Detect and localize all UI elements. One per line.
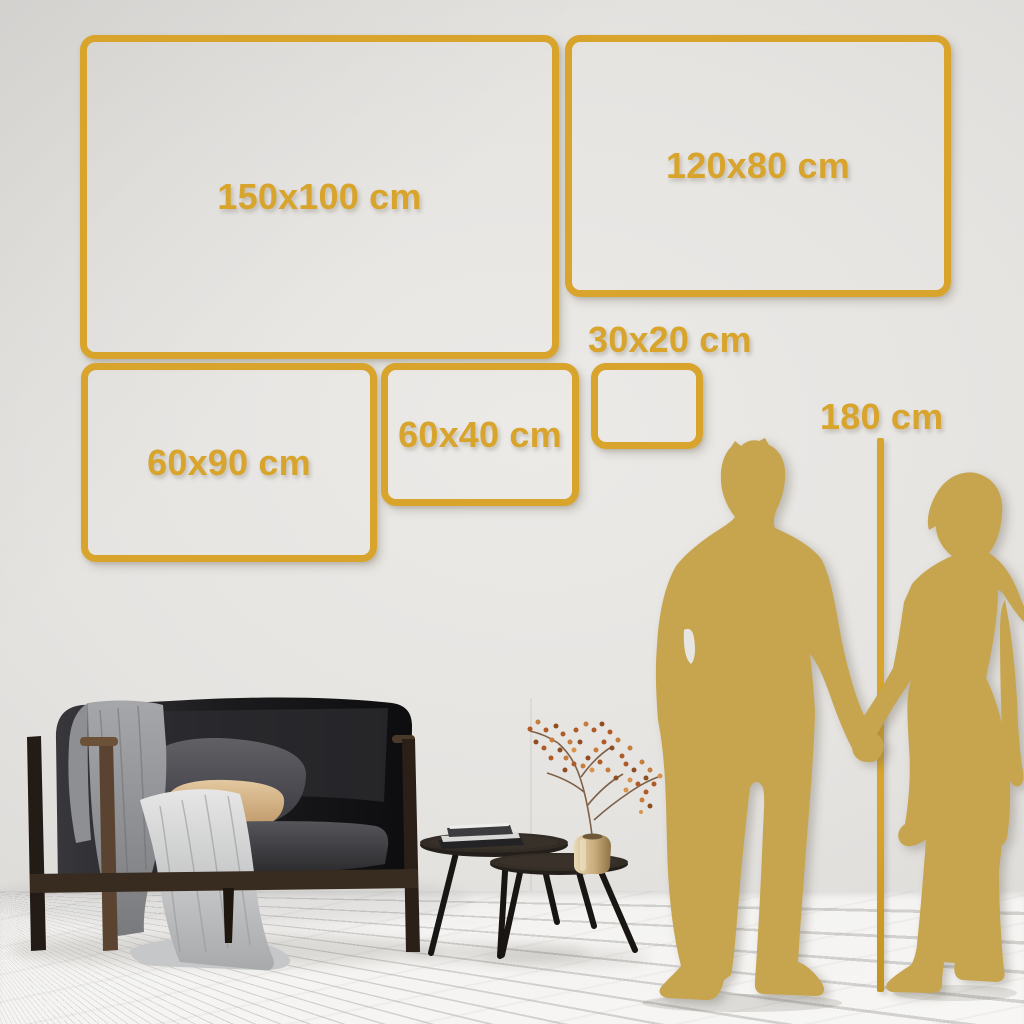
size-frame-60x40: 60x40 cm <box>381 363 579 506</box>
size-frame-60x90: 60x90 cm <box>81 363 377 562</box>
height-ruler-line <box>877 438 884 992</box>
size-frame-120x80: 120x80 cm <box>565 35 951 297</box>
size-frame-30x20 <box>591 363 703 449</box>
size-label-60x90: 60x90 cm <box>147 445 311 481</box>
size-label-30x20: 30x20 cm <box>588 322 752 358</box>
size-label-150x100: 150x100 cm <box>217 179 421 215</box>
size-label-120x80: 120x80 cm <box>666 148 850 184</box>
size-guide-scene: 150x100 cm 120x80 cm 60x90 cm 60x40 cm 3… <box>0 0 1024 1024</box>
wood-floor <box>0 891 1024 1024</box>
wall-seam <box>530 698 532 892</box>
height-label: 180 cm <box>820 399 934 435</box>
size-label-60x40: 60x40 cm <box>398 417 562 453</box>
size-frame-150x100: 150x100 cm <box>80 35 559 359</box>
